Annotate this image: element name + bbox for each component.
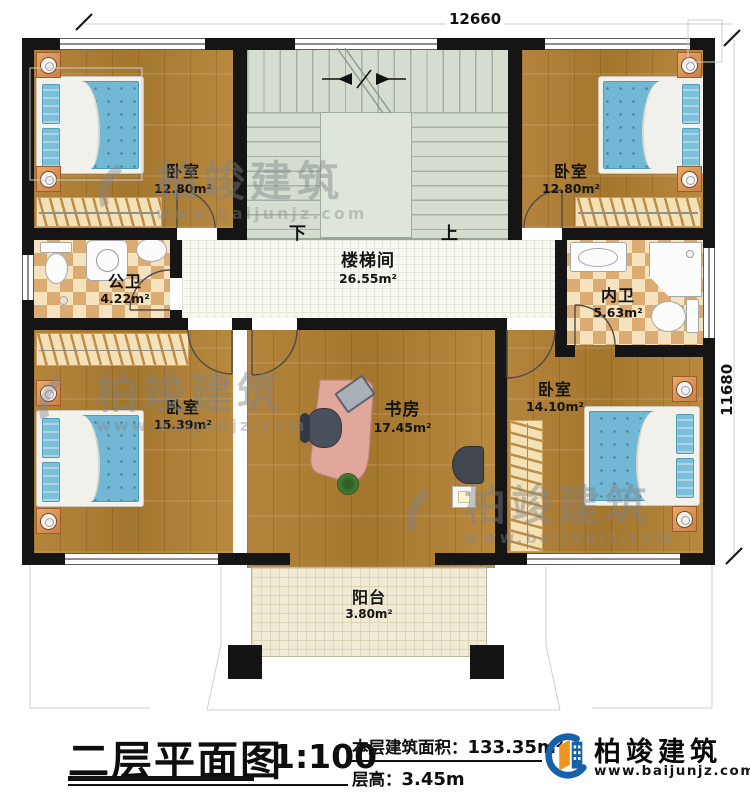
dimension-right: 11680 (718, 418, 750, 437)
room-label-bedroom-bottom-left: 卧室 15.39m² (128, 398, 238, 432)
room-label-bath-master: 内卫 5.63m² (568, 286, 668, 320)
room-label-bedroom-bottom-right: 卧室 14.10m² (500, 380, 610, 414)
floor-area-row: 本层建筑面积：133.35m² (352, 734, 564, 758)
annotation-overlay (0, 0, 750, 794)
room-label-bedroom-top-left: 卧室 12.80m² (128, 162, 238, 196)
stairs-up-label: 上 (441, 219, 458, 244)
title-underline-thick (68, 776, 254, 781)
room-label-bath-public: 公卫 4.22m² (70, 272, 180, 306)
floor-area-label: 本层建筑面积： (352, 738, 468, 757)
floor-height-label: 层高： (352, 770, 402, 789)
floor-height-value: 3.45m (402, 769, 465, 790)
floor-plan-canvas: 12660 11680 下 上 卧室 12.80m² 卧室 12.80m² 楼梯… (0, 0, 750, 794)
room-label-bedroom-top-right: 卧室 12.80m² (516, 162, 626, 196)
floor-height-row: 层高：3.45m (352, 766, 465, 790)
spec-divider (350, 760, 542, 762)
brand-logo-icon (540, 729, 590, 785)
brand-site: www.baijunjz.com (594, 763, 750, 779)
stairs-down-label: 下 (289, 219, 306, 244)
room-label-stair-hall: 楼梯间 26.55m² (308, 251, 428, 286)
room-label-study: 书房 17.45m² (350, 400, 455, 435)
room-label-balcony: 阳台 3.80m² (314, 588, 424, 622)
title-underline-thin (68, 784, 348, 786)
dimension-top: 12660 (446, 10, 504, 28)
